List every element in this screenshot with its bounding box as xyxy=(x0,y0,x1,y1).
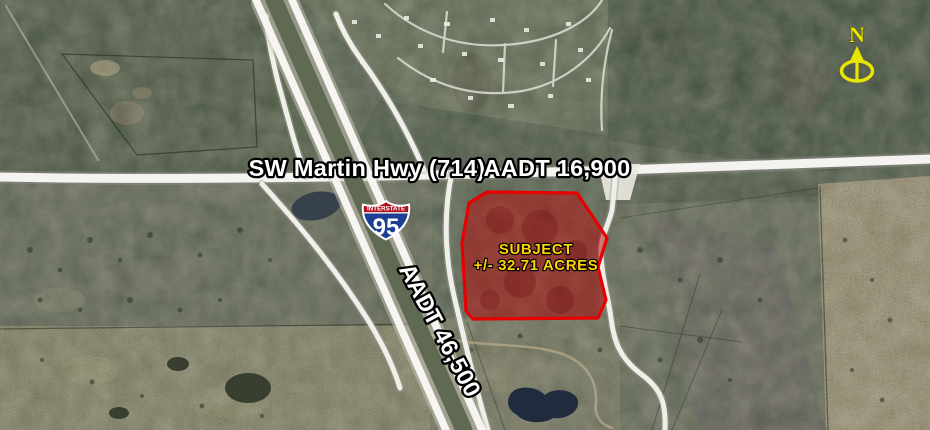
aerial-map: SUBJECT +/- 32.71 ACRES SW Martin Hwy (7… xyxy=(0,0,930,430)
shield-banner-text: INTERSTATE xyxy=(367,205,405,212)
subject-parcel: SUBJECT +/- 32.71 ACRES xyxy=(462,192,607,319)
north-label: N xyxy=(849,22,865,47)
subject-parcel-acreage: +/- 32.71 ACRES xyxy=(474,257,599,274)
martin-hwy-aadt-label: AADT 16,900 xyxy=(484,155,631,181)
aerial-map-image: SUBJECT +/- 32.71 ACRES SW Martin Hwy (7… xyxy=(0,0,930,430)
sw-martin-hwy-label: SW Martin Hwy (714) xyxy=(249,155,486,181)
subject-parcel-title: SUBJECT xyxy=(499,241,573,258)
shield-route-number: 95 xyxy=(373,214,400,241)
